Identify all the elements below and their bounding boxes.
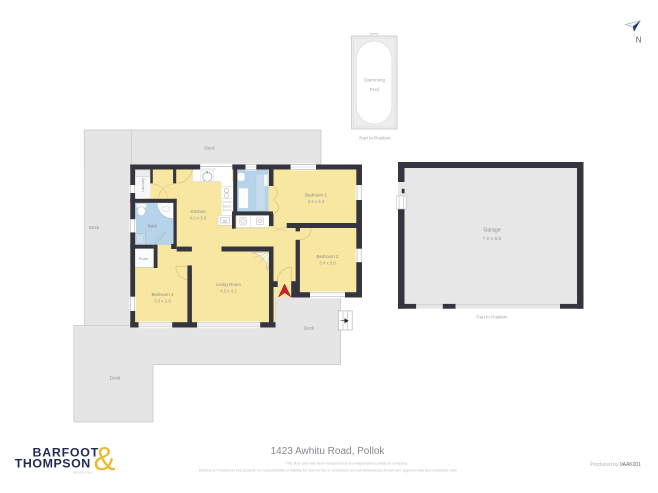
svg-text:3.9 x 4.4: 3.9 x 4.4 bbox=[308, 199, 325, 204]
svg-text:Deck: Deck bbox=[304, 326, 315, 331]
svg-text:Swimming: Swimming bbox=[364, 78, 386, 83]
svg-text:Barfoot & Thompson Ltd accepts: Barfoot & Thompson Ltd accepts no respon… bbox=[199, 468, 457, 473]
svg-text:3.0 x 2.8: 3.0 x 2.8 bbox=[154, 299, 171, 304]
svg-text:Deck: Deck bbox=[110, 376, 121, 381]
svg-text:Part In Position: Part In Position bbox=[359, 136, 391, 141]
svg-text:Bath: Bath bbox=[148, 224, 158, 229]
svg-text:Living Room: Living Room bbox=[216, 282, 241, 287]
svg-text:Kitchen: Kitchen bbox=[190, 209, 206, 214]
svg-text:3.4 x 5.0: 3.4 x 5.0 bbox=[319, 261, 336, 266]
svg-text:Bedroom 2: Bedroom 2 bbox=[316, 254, 339, 259]
svg-text:1423 Awhitu Road, Pollok: 1423 Awhitu Road, Pollok bbox=[271, 446, 386, 457]
svg-text:Part In Position: Part In Position bbox=[476, 315, 508, 320]
svg-text:Deck: Deck bbox=[204, 146, 215, 151]
svg-text:N: N bbox=[636, 36, 642, 45]
svg-text:Pool: Pool bbox=[370, 87, 379, 92]
svg-text:4.0 x 3.0: 4.0 x 3.0 bbox=[190, 216, 207, 221]
svg-text:Bedroom 3: Bedroom 3 bbox=[151, 292, 174, 297]
svg-text:Robe: Robe bbox=[139, 256, 149, 261]
svg-text:7.0 x 6.0: 7.0 x 6.0 bbox=[483, 236, 502, 242]
svg-text:Deck: Deck bbox=[89, 225, 100, 230]
svg-text:This floor plan has been measu: This floor plan has been measured by an … bbox=[286, 462, 408, 466]
svg-text:Bedroom 1: Bedroom 1 bbox=[305, 193, 328, 198]
svg-text:Produced by 0AAK001: Produced by 0AAK001 bbox=[590, 462, 641, 468]
svg-text:M: M bbox=[223, 218, 227, 223]
svg-text:Laundry: Laundry bbox=[140, 178, 145, 192]
svg-text:RESIDENTIAL: RESIDENTIAL bbox=[73, 471, 93, 475]
svg-text:Garage: Garage bbox=[483, 228, 500, 234]
svg-text:4.5 x 4.2: 4.5 x 4.2 bbox=[220, 289, 237, 294]
svg-text:THOMPSON: THOMPSON bbox=[15, 457, 91, 471]
